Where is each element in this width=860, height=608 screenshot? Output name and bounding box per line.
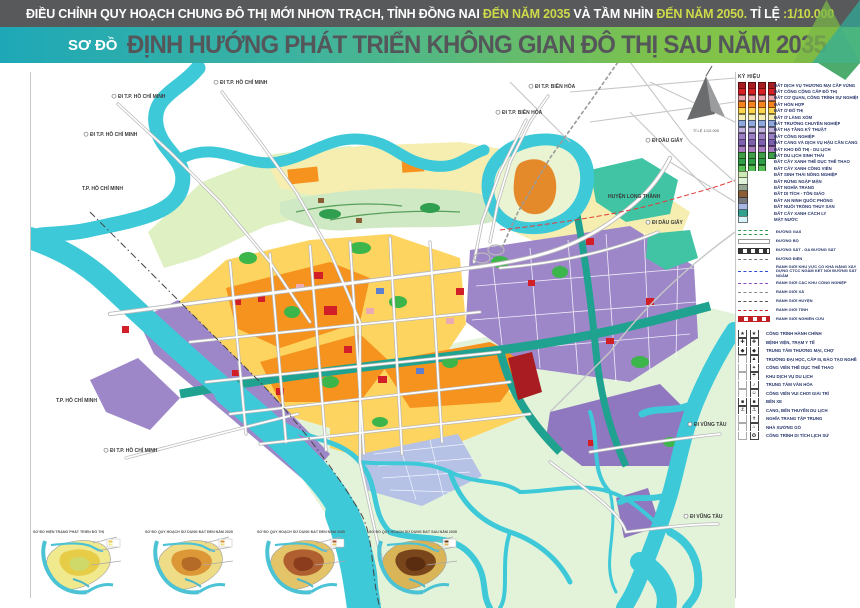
legend-line-symbol <box>738 292 768 293</box>
legend-symbol-icon: ★ <box>750 330 759 338</box>
legend-symbol-row: ▲TRƯỜNG ĐẠI HỌC, CẤP III, ĐÀO TẠO NGHỀ <box>738 355 858 363</box>
road-destination-marker <box>529 84 533 88</box>
map-label: T.P. HỒ CHÍ MINH <box>56 396 97 404</box>
legend-symbol-row: ☺CÔNG VIÊN VUI CHƠI GIẢI TRÍ <box>738 389 858 397</box>
legend-symbol-icon <box>738 432 747 440</box>
legend-line-symbol <box>738 259 768 260</box>
legend-symbol-icon <box>738 415 747 423</box>
legend-symbol-row: ♪TRUNG TÂM VĂN HÓA <box>738 381 858 389</box>
legend-label: RANH GIỚI CÁC KHU CÔNG NGHIỆP <box>776 281 847 286</box>
road-destination-marker <box>646 138 650 142</box>
legend-label: ĐẤT DU LỊCH SINH THÁI <box>774 153 824 158</box>
legend-line-symbol <box>738 271 768 272</box>
compass-rose: TỈ LỆ 1/10.000 <box>687 66 725 133</box>
legend-label: ĐƯỜNG GAS <box>776 230 801 235</box>
legend-symbol-icon: ⚓ <box>750 406 759 414</box>
legend-symbol-icon: ■ <box>750 398 759 406</box>
legend-symbol-icon: ☺ <box>750 389 759 397</box>
legend-label: BẾN XE <box>766 399 782 404</box>
legend-label: NGHĨA TRANG TẬP TRUNG <box>766 416 822 421</box>
document-title: ĐIỀU CHỈNH QUY HOẠCH CHUNG ĐÔ THỊ MỚI NH… <box>26 7 834 21</box>
map-label: ĐI T.P. HỒ CHÍ MINH <box>220 78 268 86</box>
thumbnail-map <box>145 535 237 599</box>
legend-label: ĐẤT NGHĨA TRANG <box>774 185 814 190</box>
document-title-part: ĐẾN NĂM 2035 <box>483 7 570 21</box>
legend-symbol-icon: ◆ <box>750 347 759 355</box>
legend-label: KHU DỊCH VỤ DU LỊCH <box>766 374 813 379</box>
legend-line-row: RANH GIỚI TỈNH <box>738 306 858 314</box>
road-destination-marker <box>496 110 500 114</box>
legend-symbol-icon: ⚓ <box>738 406 747 414</box>
legend-symbol-row: ⌂NHÀ XƯỞNG GỖ <box>738 423 858 431</box>
legend-symbol-row: ◆◆TRUNG TÂM THƯƠNG MẠI, CHỢ <box>738 347 858 355</box>
legend-symbol-icon <box>738 372 747 380</box>
legend-label: ĐẤT NUÔI TRỒNG THỦY SẢN <box>774 204 835 209</box>
legend-symbol-icon <box>738 389 747 397</box>
legend-symbol-row: ★★CÔNG TRÌNH HÀNH CHÍNH <box>738 330 858 338</box>
legend-symbol-row: ⚓⚓CẢNG, BẾN THUYỀN DU LỊCH <box>738 406 858 414</box>
legend-label: ĐẤT DI TÍCH - TÔN GIÁO <box>774 191 825 196</box>
legend-symbol-icon: ☂ <box>750 372 759 380</box>
legend-label: ĐẤT HỖN HỢP <box>774 102 804 107</box>
legend-label: ĐƯỜNG SẮT - GA ĐƯỜNG SẮT <box>776 248 836 253</box>
legend-symbol-icon: ✦ <box>750 364 759 372</box>
legend-line-symbol <box>738 310 768 311</box>
legend-label: RANH GIỚI KHU VỰC CÓ KHẢ NĂNG XÂY DỰNG C… <box>776 265 858 279</box>
phase-thumbnail: SƠ ĐỒ QUY HOẠCH SỬ DỤNG ĐẤT SAU NĂM 2035 <box>369 530 469 606</box>
legend-symbol-icon: ✪ <box>750 432 759 440</box>
legend-symbol-row: ✚✚BỆNH VIỆN, TRẠM Y TẾ <box>738 338 858 346</box>
legend-symbol-icon: ★ <box>738 330 747 338</box>
legend-label: CẢNG, BẾN THUYỀN DU LỊCH <box>766 408 828 413</box>
road-destination-marker <box>84 132 88 136</box>
road-destination-marker <box>684 514 688 518</box>
legend-symbol-icon: ◆ <box>738 347 747 355</box>
legend-line-row: RANH GIỚI KHU VỰC CÓ KHẢ NĂNG XÂY DỰNG C… <box>738 265 858 279</box>
legend-label: TRUNG TÂM VĂN HÓA <box>766 382 813 387</box>
legend-symbol-icon <box>738 381 747 389</box>
legend-line-row: RANH GIỚI CÁC KHU CÔNG NGHIỆP <box>738 279 858 287</box>
legend-symbol-icon: ▲ <box>750 355 759 363</box>
legend-line-symbol <box>738 248 770 254</box>
legend-line-row: RANH GIỚI HUYỆN <box>738 297 858 305</box>
thumbnail-map <box>33 535 125 599</box>
legend-title: KÝ HIỆU <box>738 74 858 80</box>
legend-label: ĐẤT Ở ĐÔ THỊ <box>774 108 803 113</box>
legend-label: ĐƯỜNG BỘ <box>776 239 799 244</box>
map-label: ĐI T.P. HỒ CHÍ MINH <box>118 92 166 100</box>
legend-label: ĐƯỜNG ĐIỆN <box>776 257 802 262</box>
phase-thumbnail: SƠ ĐỒ QUY HOẠCH SỬ DỤNG ĐẤT ĐẾN NĂM 2035 <box>257 530 357 606</box>
legend-line-symbol <box>738 301 768 302</box>
map-label: ĐI VŨNG TÀU <box>690 513 723 520</box>
phase-thumbnails: SƠ ĐỒ HIỆN TRẠNG PHÁT TRIỂN ĐÔ THỊSƠ ĐỒ … <box>33 530 503 606</box>
map-label: ĐI T.P. HỒ CHÍ MINH <box>110 446 158 454</box>
map-label: ĐI DẦU GIÂY <box>652 219 684 226</box>
document-title-bar: ĐIỀU CHỈNH QUY HOẠCH CHUNG ĐÔ THỊ MỚI NH… <box>0 0 860 27</box>
legend-label: BỆNH VIỆN, TRẠM Y TẾ <box>766 340 815 345</box>
legend-label: MẶT NƯỚC <box>774 217 798 222</box>
document-title-part: VÀ TẦM NHÌN <box>570 7 656 21</box>
legend-label: RANH GIỚI TỈNH <box>776 308 808 313</box>
legend-symbol-icon: ♪ <box>750 381 759 389</box>
legend-symbol-icon: ✚ <box>738 338 747 346</box>
legend-label: ĐẤT AN NINH QUỐC PHÒNG <box>774 198 833 203</box>
legend-label: ĐẤT KHO ĐÔ THỊ - DU LỊCH <box>774 147 831 152</box>
legend-label: ĐẤT DỊCH VỤ THƯƠNG MẠI CẤP VÙNG <box>774 83 855 88</box>
legend-line-row: RANH GIỚI XÃ <box>738 288 858 296</box>
map-frame-left <box>30 72 31 598</box>
phase-thumbnail: SƠ ĐỒ QUY HOẠCH SỬ DỤNG ĐẤT ĐẾN NĂM 2025 <box>145 530 245 606</box>
legend-symbol-icon <box>738 364 747 372</box>
legend-symbol-icon: ✝ <box>750 415 759 423</box>
map-label: ĐI T.P. HỒ CHÍ MINH <box>90 130 138 138</box>
document-title-part: ĐẾN NĂM 2050. <box>656 7 747 21</box>
legend-line-row: ĐƯỜNG GAS <box>738 229 858 237</box>
legend-label: ĐẤT CÂY XANH CÔNG VIÊN <box>774 166 832 171</box>
legend-symbol-icon: ■ <box>738 398 747 406</box>
legend-symbol-row: ■■BẾN XE <box>738 398 858 406</box>
legend-symbol-row: ✝NGHĨA TRANG TẬP TRUNG <box>738 415 858 423</box>
legend-line-list: ĐƯỜNG GASĐƯỜNG BỘĐƯỜNG SẮT - GA ĐƯỜNG SẮ… <box>738 229 858 324</box>
road-destination-marker <box>688 422 692 426</box>
legend-label: ĐẤT CÔNG NGHIỆP <box>774 134 815 139</box>
legend-symbol-icon: ✚ <box>750 338 759 346</box>
road-destination-marker <box>646 220 650 224</box>
legend-line-row: RANH GIỚI NGHIÊN CỨU <box>738 315 858 323</box>
legend-line-symbol <box>738 316 770 322</box>
legend-symbol-icon <box>738 423 747 431</box>
sheet-title-bar: SƠ ĐỒ ĐỊNH HƯỚNG PHÁT TRIỂN KHÔNG GIAN Đ… <box>0 27 860 63</box>
legend-line-row: ĐƯỜNG ĐIỆN <box>738 256 858 264</box>
legend-symbol-row: ☂KHU DỊCH VỤ DU LỊCH <box>738 372 858 380</box>
legend-line-symbol <box>738 283 768 284</box>
road-destination-marker <box>214 80 218 84</box>
svg-text:TỈ LỆ 1/10.000: TỈ LỆ 1/10.000 <box>693 128 720 133</box>
legend-label: TRUNG TÂM THƯƠNG MẠI, CHỢ <box>766 348 834 353</box>
phase-thumbnail: SƠ ĐỒ HIỆN TRẠNG PHÁT TRIỂN ĐÔ THỊ <box>33 530 133 606</box>
legend-label: CÔNG VIÊN VUI CHƠI GIẢI TRÍ <box>766 391 829 396</box>
legend-label: ĐẤT Ở LÀNG XÓM <box>774 115 812 120</box>
legend-label: RANH GIỚI XÃ <box>776 290 804 295</box>
legend-symbol-icon <box>738 355 747 363</box>
sheet-title-prefix: SƠ ĐỒ <box>68 37 117 54</box>
legend-label: TRƯỜNG ĐẠI HỌC, CẤP III, ĐÀO TẠO NGHỀ <box>766 357 857 362</box>
legend-line-symbol <box>738 230 768 235</box>
legend-label: ĐẤT HẠ TẦNG KỸ THUẬT <box>774 127 827 132</box>
map-label: ĐI DẦU GIÂY <box>652 137 684 144</box>
document-title-part: :1/10.000 <box>783 7 834 21</box>
legend-label: CÔNG TRÌNH DI TÍCH LỊCH SỬ <box>766 433 829 438</box>
plan-sheet: ĐIỀU CHỈNH QUY HOẠCH CHUNG ĐÔ THỊ MỚI NH… <box>0 0 860 608</box>
legend-label: CÔNG TRÌNH HÀNH CHÍNH <box>766 331 822 336</box>
legend-panel: KÝ HIỆU ĐẤT DỊCH VỤ THƯƠNG MẠI CẤP VÙNGĐ… <box>738 74 858 440</box>
legend-label: ĐẤT CÂY XANH THỂ DỤC THỂ THAO <box>774 159 850 164</box>
legend-label: ĐẤT RỪNG NGẬP MẶN <box>774 179 822 184</box>
main-map: ĐI T.P. HỒ CHÍ MINHĐI T.P. HỒ CHÍ MINHĐI… <box>30 62 735 608</box>
document-title-part: ĐIỀU CHỈNH QUY HOẠCH CHUNG ĐÔ THỊ MỚI NH… <box>26 7 483 21</box>
legend-label: ĐẤT CẢNG VÀ DỊCH VỤ HẬU CẦN CẢNG <box>774 140 858 145</box>
map-frame-right <box>735 72 736 598</box>
legend-symbol-row: ✦CÔNG VIÊN THỂ DỤC THỂ THAO <box>738 364 858 372</box>
legend-label: ĐẤT SINH THÁI NÔNG NGHIỆP <box>774 172 837 177</box>
document-title-part: TỈ LỆ <box>747 7 783 21</box>
legend-line-row: ĐƯỜNG BỘ <box>738 238 858 246</box>
legend-line-symbol <box>738 239 770 244</box>
legend-label: RANH GIỚI NGHIÊN CỨU <box>776 317 824 322</box>
legend-label: CÔNG VIÊN THỂ DỤC THỂ THAO <box>766 365 834 370</box>
legend-label: ĐẤT TRƯỜNG CHUYÊN NGHIỆP <box>774 121 840 126</box>
thumbnail-map <box>369 535 461 599</box>
legend-label: RANH GIỚI HUYỆN <box>776 299 813 304</box>
legend-landuse-list: ĐẤT DỊCH VỤ THƯƠNG MẠI CẤP VÙNGĐẤT CÔNG … <box>738 82 858 223</box>
thumbnail-map <box>257 535 349 599</box>
road-destination-marker <box>112 94 116 98</box>
legend-symbol-row: ✪CÔNG TRÌNH DI TÍCH LỊCH SỬ <box>738 432 858 440</box>
legend-line-row: ĐƯỜNG SẮT - GA ĐƯỜNG SẮT <box>738 247 858 255</box>
sheet-title: ĐỊNH HƯỚNG PHÁT TRIỂN KHÔNG GIAN ĐÔ THỊ … <box>127 31 826 60</box>
legend-label: NHÀ XƯỞNG GỖ <box>766 425 801 430</box>
map-label: T.P. HỒ CHÍ MINH <box>82 184 123 192</box>
legend-symbol-list: ★★CÔNG TRÌNH HÀNH CHÍNH✚✚BỆNH VIỆN, TRẠM… <box>738 330 858 440</box>
legend-swatch <box>738 216 748 222</box>
map-label: HUYỆN LONG THÀNH <box>608 192 661 200</box>
legend-label: ĐẤT CÔNG CỘNG CẤP ĐÔ THỊ <box>774 89 837 94</box>
map-label: ĐI VŨNG TÀU <box>694 421 727 428</box>
map-label: ĐI T.P. BIÊN HÒA <box>502 108 543 116</box>
legend-symbol-icon: ⌂ <box>750 423 759 431</box>
road-destination-marker <box>104 448 108 452</box>
map-label: ĐI T.P. BIÊN HÒA <box>535 82 576 90</box>
legend-label: ĐẤT CƠ QUAN, CÔNG TRÌNH SỰ NGHIỆP <box>774 95 858 100</box>
legend-label: ĐẤT CÂY XANH CÁCH LY <box>774 211 826 216</box>
